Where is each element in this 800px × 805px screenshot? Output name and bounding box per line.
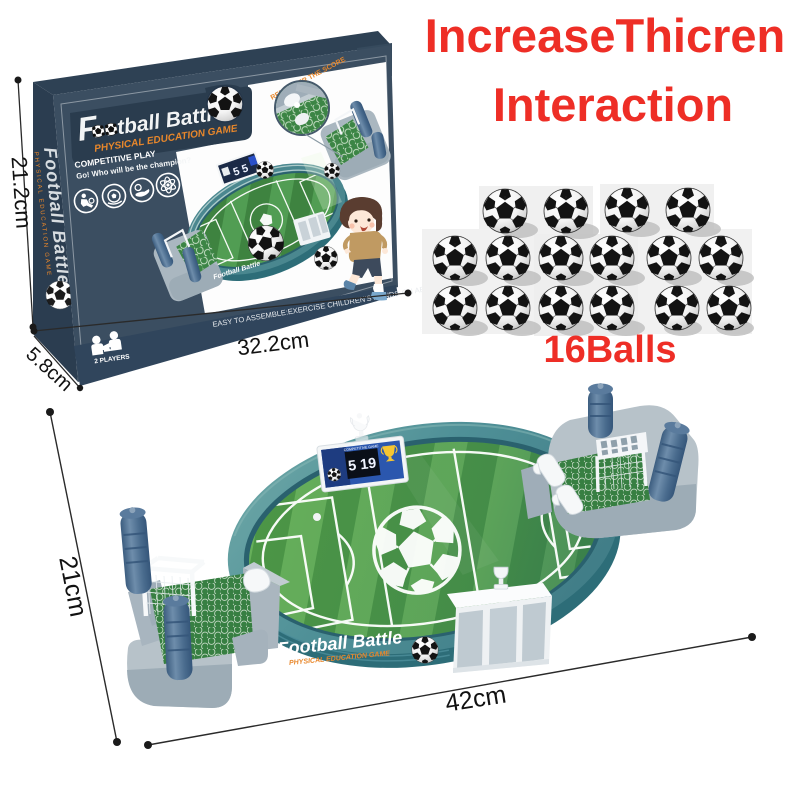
svg-text:21.2cm: 21.2cm — [6, 156, 36, 230]
svg-text:5 19: 5 19 — [347, 455, 377, 474]
svg-text:IncreaseThicren: IncreaseThicren — [425, 9, 786, 62]
svg-text:16Balls: 16Balls — [543, 329, 676, 371]
svg-text:Interaction: Interaction — [493, 78, 733, 131]
